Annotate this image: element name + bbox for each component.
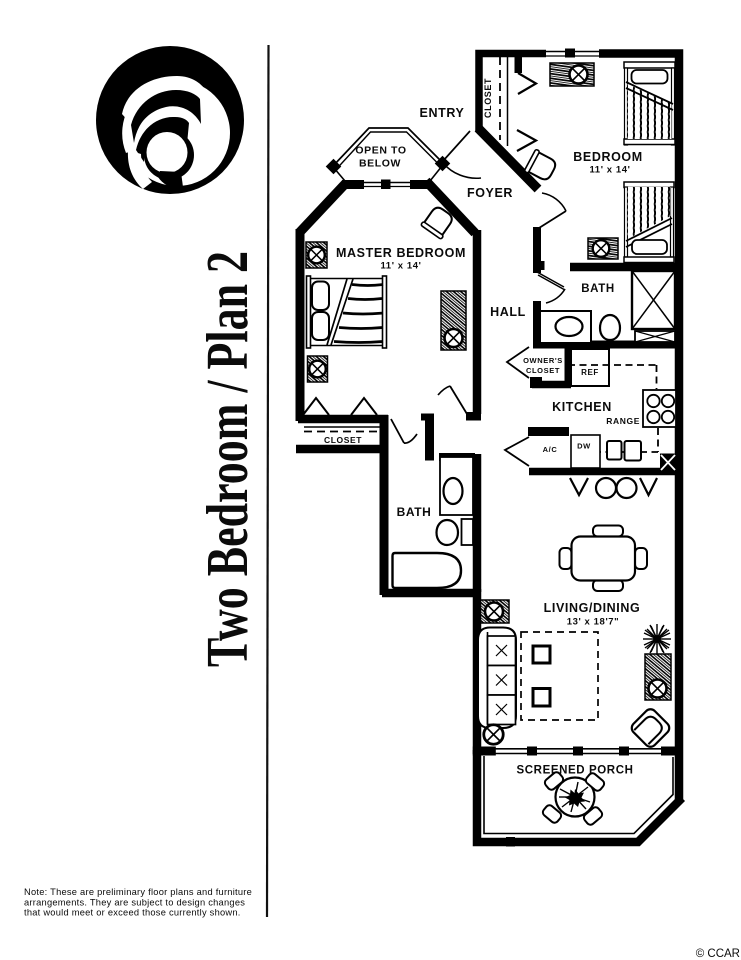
svg-text:that would meet or exceed thos: that would meet or exceed those currentl… xyxy=(24,908,241,918)
svg-text:KITCHEN: KITCHEN xyxy=(552,400,612,414)
svg-text:FOYER: FOYER xyxy=(467,186,513,200)
svg-text:CLOSET: CLOSET xyxy=(526,366,560,375)
svg-text:11' x 14': 11' x 14' xyxy=(589,165,630,176)
svg-text:A/C: A/C xyxy=(543,445,558,454)
svg-text:11' x 14': 11' x 14' xyxy=(380,261,421,272)
svg-text:SCREENED PORCH: SCREENED PORCH xyxy=(516,765,633,777)
svg-text:© CCAR: © CCAR xyxy=(696,948,740,960)
svg-text:CLOSET: CLOSET xyxy=(483,78,493,118)
svg-text:REF: REF xyxy=(581,368,599,377)
svg-text:BELOW: BELOW xyxy=(359,158,401,170)
svg-text:Note: These are preliminary fl: Note: These are preliminary floor plans … xyxy=(24,887,252,897)
svg-text:CLOSET: CLOSET xyxy=(324,435,362,445)
svg-text:RANGE: RANGE xyxy=(606,416,640,426)
svg-text:ENTRY: ENTRY xyxy=(420,106,465,120)
svg-text:HALL: HALL xyxy=(490,305,526,319)
svg-text:BEDROOM: BEDROOM xyxy=(573,150,642,164)
svg-text:OWNER'S: OWNER'S xyxy=(523,356,563,365)
svg-text:DW: DW xyxy=(577,442,591,451)
svg-text:LIVING/DINING: LIVING/DINING xyxy=(544,601,641,615)
svg-text:Two Bedroom / Plan 2: Two Bedroom / Plan 2 xyxy=(194,251,260,667)
svg-text:BATH: BATH xyxy=(581,283,615,295)
svg-text:arrangements. They are subject: arrangements. They are subject to design… xyxy=(24,897,245,907)
svg-text:OPEN TO: OPEN TO xyxy=(355,145,406,157)
svg-text:MASTER BEDROOM: MASTER BEDROOM xyxy=(336,246,466,260)
svg-text:BATH: BATH xyxy=(397,505,432,519)
svg-text:13' x 18'7": 13' x 18'7" xyxy=(567,617,620,628)
